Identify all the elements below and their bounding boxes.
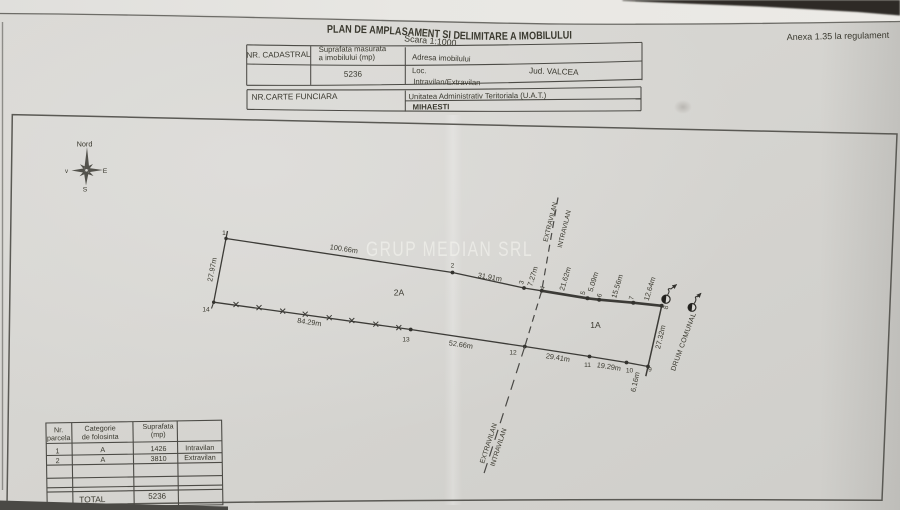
svg-text:NR. CADASTRAL: NR. CADASTRAL [246,50,311,60]
svg-text:A: A [100,455,105,464]
svg-text:Jud. VALCEA: Jud. VALCEA [529,66,579,77]
svg-text:1426: 1426 [150,444,166,453]
svg-text:9: 9 [648,367,652,374]
svg-text:NR.CARTE FUNCIARA: NR.CARTE FUNCIARA [252,92,338,102]
svg-text:(mp): (mp) [151,430,166,439]
svg-text:11: 11 [584,362,591,369]
svg-text:Intravilan/Extravilan: Intravilan/Extravilan [413,77,480,87]
svg-text:1: 1 [222,230,226,237]
svg-text:5236: 5236 [344,70,363,79]
svg-text:A: A [100,445,105,454]
svg-text:a imobilului (mp): a imobilului (mp) [319,53,376,63]
svg-text:14: 14 [202,307,210,314]
svg-text:2: 2 [56,456,60,465]
svg-text:Loc.: Loc. [412,66,427,75]
svg-text:de folosinta: de folosinta [82,432,119,442]
svg-text:parcela: parcela [47,433,71,442]
svg-text:1A: 1A [590,320,601,330]
svg-text:S: S [83,186,88,193]
svg-text:2: 2 [451,263,455,270]
svg-text:Extravilan: Extravilan [184,453,216,462]
svg-text:2A: 2A [394,288,405,298]
svg-text:1: 1 [55,446,59,455]
svg-text:E: E [103,168,108,175]
svg-text:Intravilan: Intravilan [185,443,214,452]
svg-text:12: 12 [509,350,517,357]
svg-text:5236: 5236 [148,492,166,501]
svg-text:GRUP MEDIAN SRL: GRUP MEDIAN SRL [366,237,533,261]
svg-text:Unitatea Administrativ Teritor: Unitatea Administrativ Teritoriala (U.A.… [408,91,546,101]
svg-text:MIHAESTI: MIHAESTI [413,102,450,111]
svg-text:Nord: Nord [77,139,93,148]
svg-text:3810: 3810 [151,454,167,463]
svg-text:13: 13 [402,337,410,344]
